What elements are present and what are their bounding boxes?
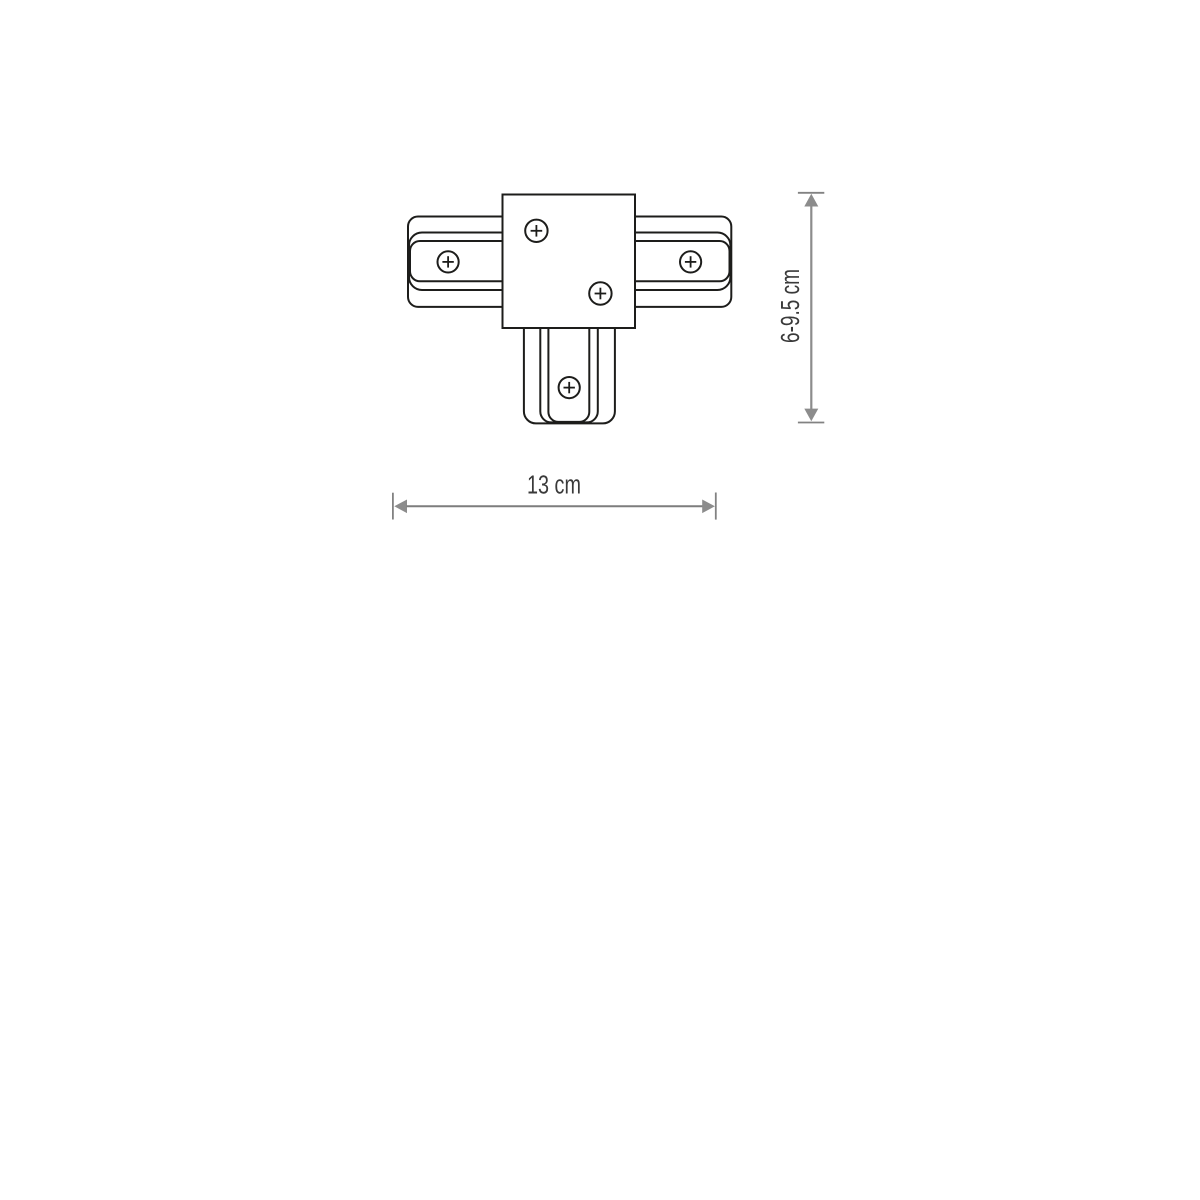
svg-text:6-9.5 cm: 6-9.5 cm — [777, 269, 805, 343]
svg-text:13 cm: 13 cm — [527, 471, 581, 499]
